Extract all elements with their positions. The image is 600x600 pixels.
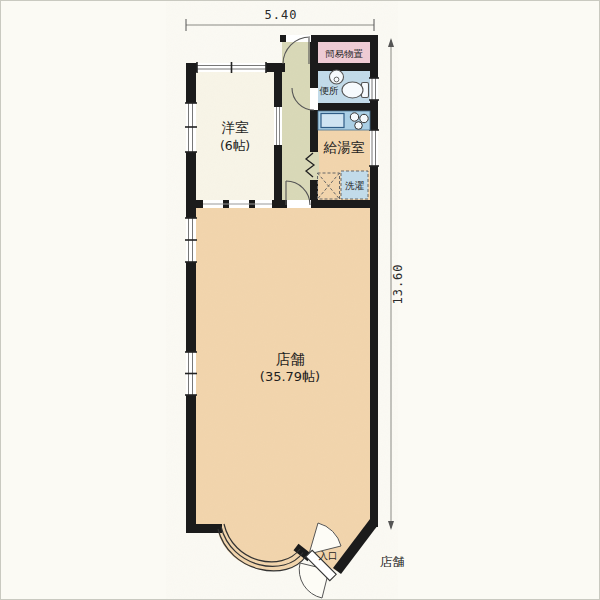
sliding-door-western-hallway [274, 107, 282, 145]
kitchen-sink-icon [321, 114, 344, 128]
dimension-right: 13.60 [388, 38, 405, 530]
shop-room-label: 店舗 [276, 351, 306, 367]
floor-plan-page: 5.40 13.60 簡易物置 便所 給湯室 洗濯 洋室 (6帖) 店舗 (35… [0, 0, 600, 600]
wall-hallway-right-c [310, 180, 318, 200]
wall-toilet-bottom [310, 103, 378, 111]
wall-western-right-upper [274, 63, 282, 107]
window-western-left [185, 103, 197, 152]
wall-top-right-a [280, 35, 286, 42]
window-kitchen-right [369, 130, 379, 166]
toilet-label: 便所 [320, 85, 340, 96]
wall-top-right-b [311, 35, 378, 42]
window-shop-left-lower [185, 352, 197, 395]
window-toilet-right [369, 78, 379, 100]
dimension-top-label: 5.40 [265, 8, 298, 22]
window-western-top [197, 62, 266, 73]
wall-hallway-right-b [310, 110, 318, 155]
wall-western-right-lower [274, 145, 282, 208]
dimension-top: 5.40 [186, 8, 374, 31]
western-room-size: (6帖) [220, 138, 250, 153]
shop-room-size: (35.79帖) [260, 369, 320, 384]
hand-sink-icon [330, 70, 344, 84]
dimension-right-label: 13.60 [391, 263, 405, 304]
entrance-label: 入口 [319, 550, 338, 561]
wall-storage-bottom [310, 63, 378, 71]
western-room-label: 洋室 [222, 119, 250, 135]
exterior-shop-label: 店舗 [380, 554, 405, 569]
laundry-label: 洗濯 [345, 180, 365, 191]
toilet-icon [342, 82, 369, 98]
storage-label: 簡易物置 [325, 48, 364, 59]
wall-bottom-left [186, 524, 222, 533]
kitchen-label: 給湯室 [323, 139, 365, 155]
window-shop-left-upper [185, 218, 197, 262]
kitchen-counter [318, 111, 370, 130]
door-gap-hallway-shop [287, 200, 311, 208]
floor-plan-drawing: 5.40 13.60 簡易物置 便所 給湯室 洗濯 洋室 (6帖) 店舗 (35… [1, 1, 599, 599]
sliding-door-western-shop [203, 200, 272, 208]
